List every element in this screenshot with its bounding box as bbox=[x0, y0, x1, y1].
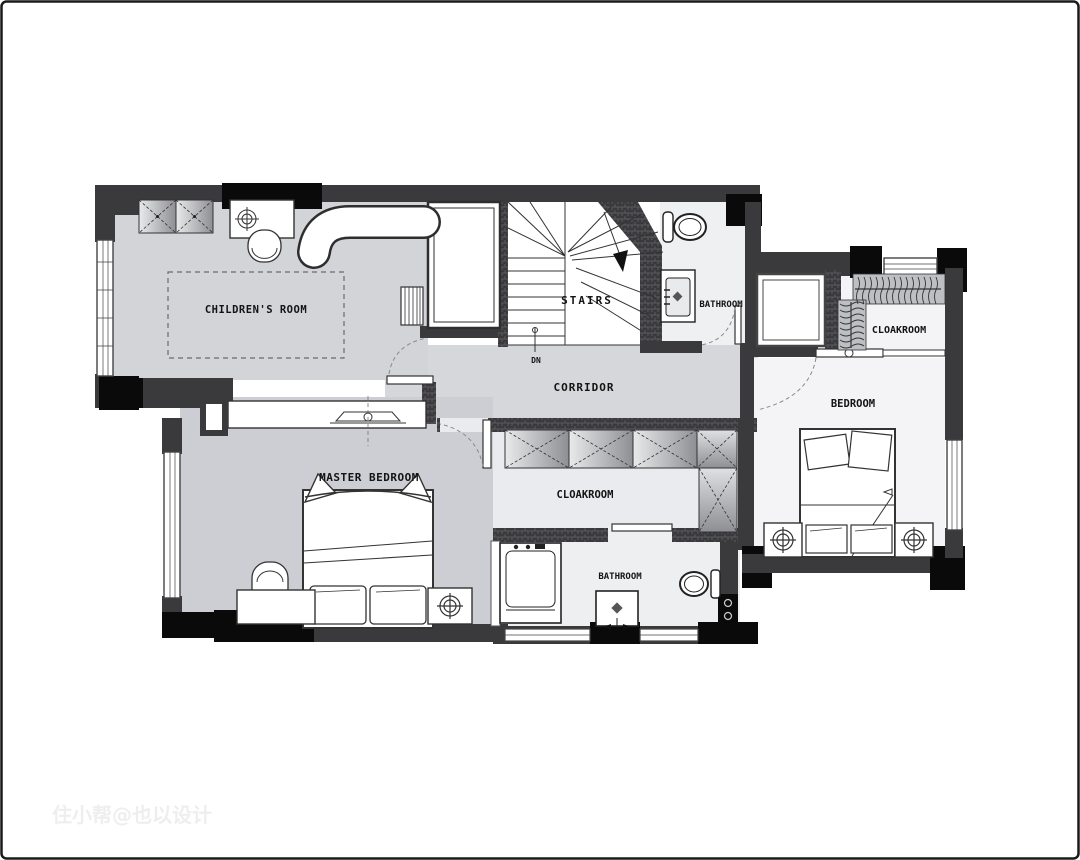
label-childrens-room: CHILDREN'S ROOM bbox=[205, 304, 307, 316]
window-master-left bbox=[164, 452, 180, 598]
label-corridor: CORRIDOR bbox=[554, 381, 615, 394]
window-bathroom-bottom-1 bbox=[505, 629, 590, 641]
label-bathroom-bottom: BATHROOM bbox=[598, 572, 642, 582]
floor-plan-page: CHILDREN'S ROOM STAIRS DN BATHROOM CLOAK… bbox=[0, 0, 1080, 860]
shower-enclosure bbox=[757, 274, 825, 346]
label-bedroom: BEDROOM bbox=[831, 398, 875, 410]
window-cloakroom-top bbox=[884, 258, 937, 275]
slide-ladder bbox=[401, 287, 423, 325]
bedroom-bed bbox=[800, 429, 895, 557]
watermark-text: 住小帮@也以设计 bbox=[52, 803, 212, 827]
floor-plan-drawing: CHILDREN'S ROOM STAIRS DN BATHROOM CLOAK… bbox=[0, 0, 1080, 860]
window-childrens-left bbox=[97, 240, 113, 376]
childrens-wardrobe bbox=[139, 200, 213, 233]
window-bedroom-right bbox=[947, 440, 962, 530]
master-nightstand bbox=[428, 588, 472, 624]
master-bed bbox=[303, 474, 433, 628]
label-bathroom-top: BATHROOM bbox=[699, 300, 743, 310]
label-stairs: STAIRS bbox=[561, 294, 613, 307]
door-bathroom-bottom bbox=[612, 524, 672, 531]
label-cloakroom-center: CLOAKROOM bbox=[557, 489, 614, 501]
label-dn: DN bbox=[531, 356, 541, 365]
label-cloakroom-right: CLOAKROOM bbox=[872, 325, 926, 336]
window-bathroom-bottom-2 bbox=[640, 629, 698, 641]
label-master-bedroom: MASTER BEDROOM bbox=[319, 471, 419, 484]
